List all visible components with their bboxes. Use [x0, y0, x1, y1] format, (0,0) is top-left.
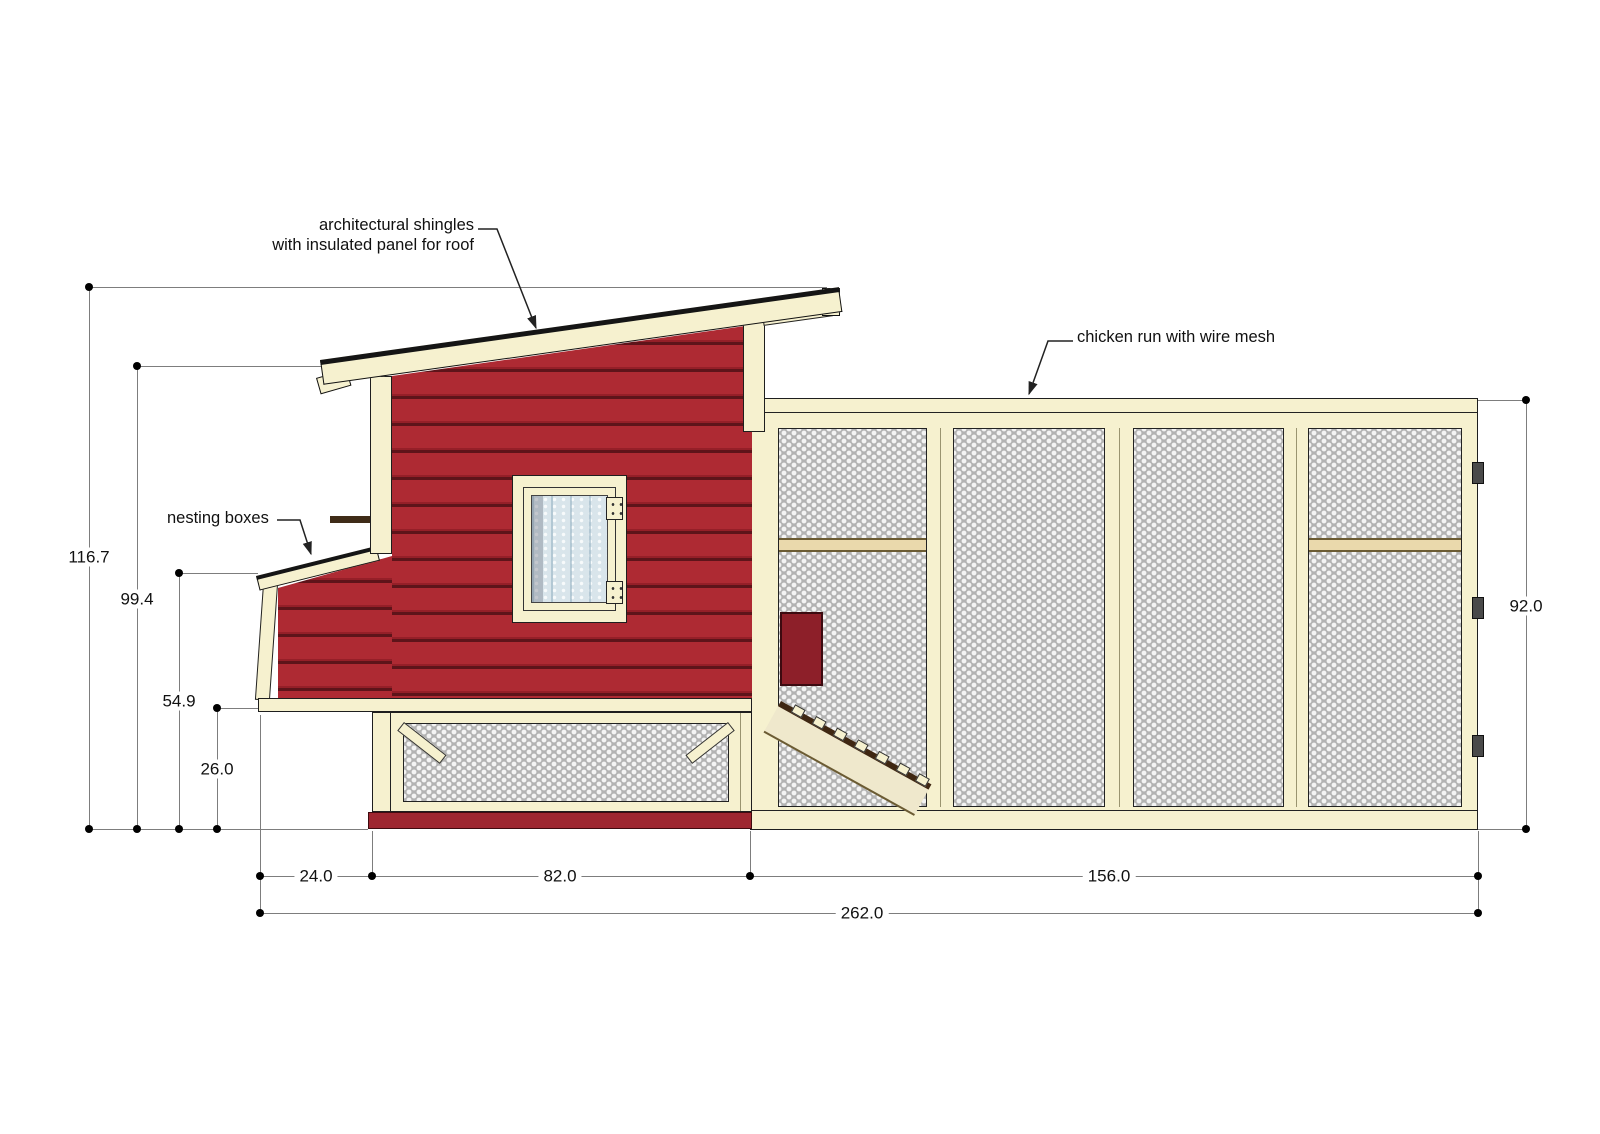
- ext-line: [89, 287, 827, 288]
- roof-annotation-line2: with insulated panel for roof: [216, 235, 474, 255]
- run-mesh-panel-4: [1308, 428, 1462, 807]
- run-door-hinge: [1472, 735, 1484, 757]
- roof-annotation-line1: architectural shingles: [216, 215, 474, 235]
- run-mesh-panel-2: [953, 428, 1105, 807]
- ext-line: [750, 831, 751, 876]
- dim-nest-roof-height: 54.9: [157, 692, 200, 711]
- ext-line: [1478, 829, 1526, 830]
- dim-dot: [133, 825, 141, 833]
- dim-dot: [85, 283, 93, 291]
- pop-door: [780, 612, 823, 686]
- dim-coop-width: 82.0: [538, 867, 581, 886]
- coop-left-trim: [370, 376, 392, 554]
- run-bottom-rail-line: [751, 810, 1477, 811]
- dim-dot: [175, 825, 183, 833]
- ext-line: [137, 366, 322, 367]
- dim-dot: [256, 872, 264, 880]
- run-annotation: chicken run with wire mesh: [1077, 327, 1275, 347]
- dim-dot: [1474, 909, 1482, 917]
- dim-coop-roof-height: 99.4: [115, 590, 158, 609]
- dim-line-widths: [260, 876, 1478, 877]
- dim-dot: [175, 569, 183, 577]
- dim-run-width: 156.0: [1083, 867, 1136, 886]
- dim-run-height: 92.0: [1504, 597, 1547, 616]
- dim-dot: [85, 825, 93, 833]
- run-mesh-panel-3: [1133, 428, 1284, 807]
- roost-bar-left: [779, 538, 926, 552]
- dim-dot: [1474, 872, 1482, 880]
- run-door-hinge: [1472, 462, 1484, 484]
- dim-dot: [1522, 396, 1530, 404]
- ground-ext-line: [89, 829, 368, 830]
- run-post-seam: [1296, 428, 1297, 807]
- dim-dot: [213, 704, 221, 712]
- run-post-seam: [940, 428, 941, 807]
- skid-base: [368, 812, 752, 829]
- dim-dot: [368, 872, 376, 880]
- dim-nest-depth: 24.0: [294, 867, 337, 886]
- dim-dot: [1522, 825, 1530, 833]
- nesting-annotation: nesting boxes: [167, 508, 269, 528]
- run-top-rail-line: [751, 412, 1477, 413]
- coop-plan-canvas: architectural shingles with insulated pa…: [0, 0, 1600, 1134]
- under-coop-post-seam: [390, 713, 391, 811]
- dim-total-width: 262.0: [836, 904, 889, 923]
- ext-line: [372, 831, 373, 876]
- run-door-hinge: [1472, 597, 1484, 619]
- roost-bar-right: [1309, 538, 1461, 552]
- ext-line: [260, 715, 261, 913]
- dim-total-height: 116.7: [63, 548, 114, 567]
- coop-floor-band: [258, 698, 752, 712]
- coop-right-trim: [743, 320, 765, 432]
- dim-dot: [133, 362, 141, 370]
- ext-line: [1478, 400, 1526, 401]
- run-post-seam: [1119, 428, 1120, 807]
- dim-dot: [256, 909, 264, 917]
- nesting-box-side-wall: [255, 584, 278, 701]
- dim-floor-height: 26.0: [195, 760, 238, 779]
- window-hinge: [606, 497, 623, 520]
- window-hinge: [606, 581, 623, 604]
- dim-dot: [746, 872, 754, 880]
- under-coop-mesh: [403, 723, 729, 802]
- dim-dot: [213, 825, 221, 833]
- coop-window-glass: [531, 495, 608, 603]
- under-coop-post-seam: [740, 713, 741, 811]
- ext-line: [179, 573, 258, 574]
- roof-annotation: architectural shingles with insulated pa…: [216, 215, 474, 255]
